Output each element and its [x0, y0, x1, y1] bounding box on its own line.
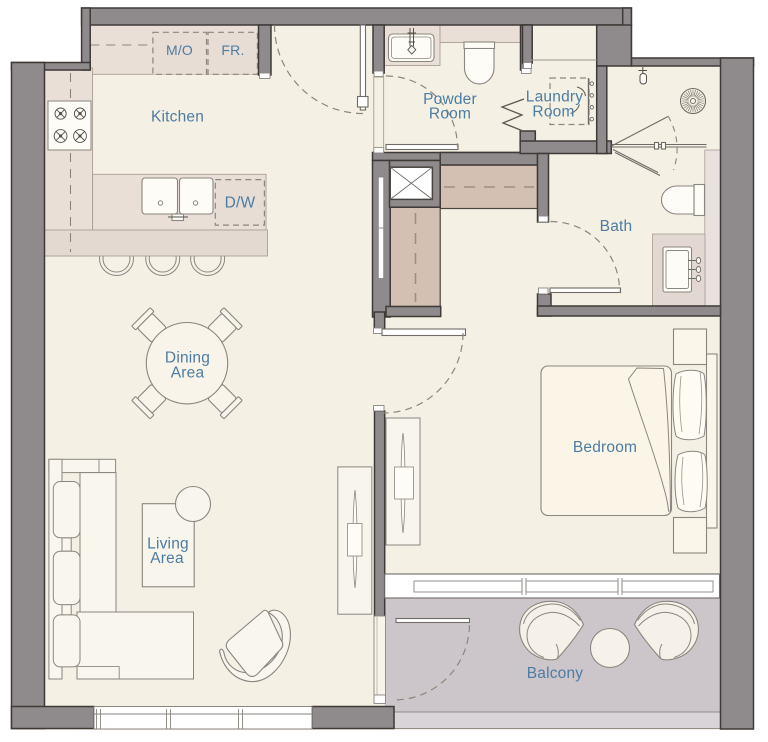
- svg-text:Room: Room: [532, 104, 574, 121]
- svg-text:Kitchen: Kitchen: [151, 109, 204, 126]
- svg-text:Room: Room: [429, 106, 471, 123]
- svg-text:Area: Area: [171, 365, 205, 382]
- svg-text:Bedroom: Bedroom: [573, 439, 637, 456]
- svg-text:FR.: FR.: [221, 42, 244, 58]
- svg-text:Area: Area: [150, 550, 184, 567]
- svg-text:D/W: D/W: [225, 195, 256, 212]
- svg-text:Balcony: Balcony: [527, 665, 584, 682]
- svg-text:Bath: Bath: [600, 218, 633, 235]
- svg-text:M/O: M/O: [166, 42, 193, 58]
